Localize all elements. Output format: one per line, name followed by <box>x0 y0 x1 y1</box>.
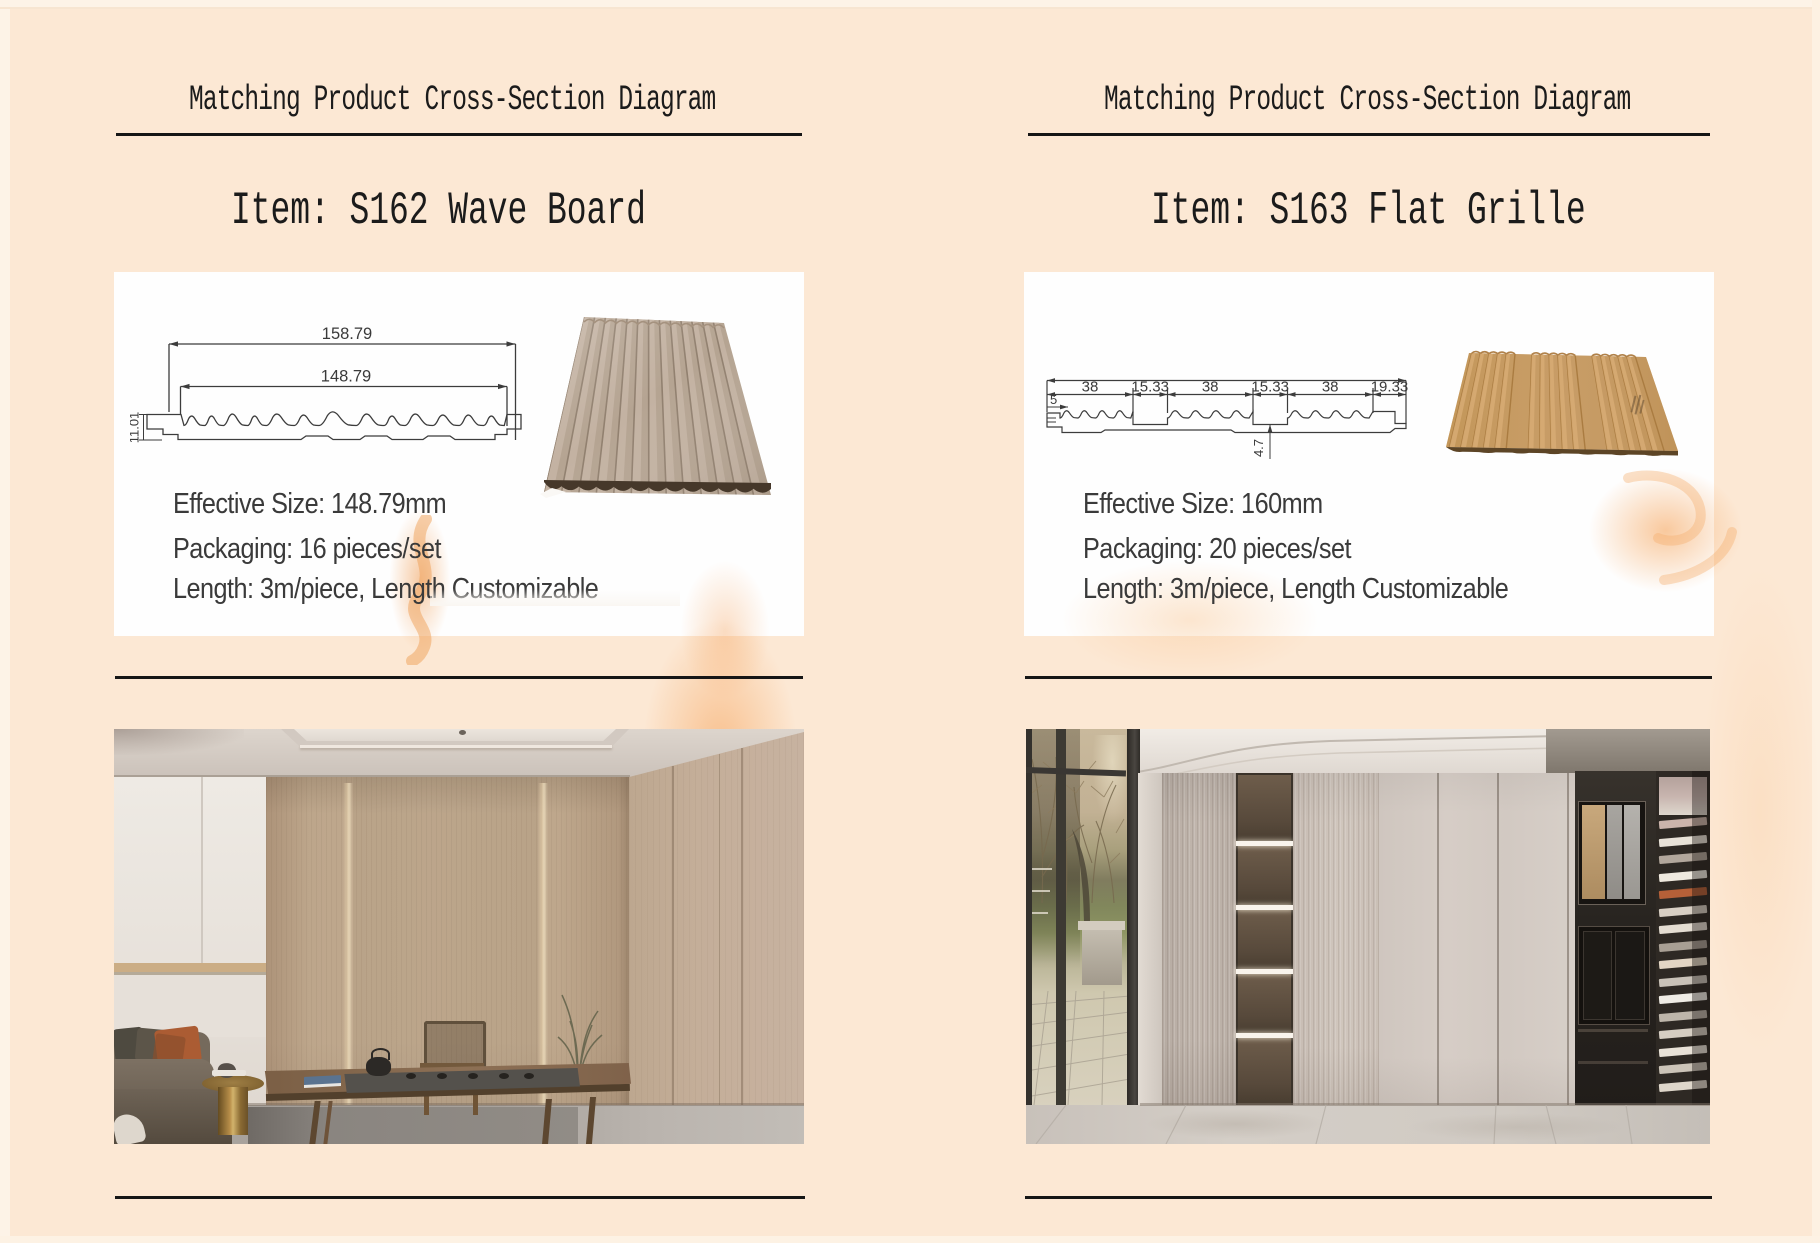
svg-text:38: 38 <box>1202 379 1219 396</box>
svg-text:158.79: 158.79 <box>322 325 372 343</box>
svg-text:38: 38 <box>1082 379 1099 396</box>
svg-text:15.33: 15.33 <box>1131 379 1169 396</box>
svg-text:11.01: 11.01 <box>130 412 142 444</box>
svg-text:38: 38 <box>1322 379 1339 396</box>
svg-text:19.33: 19.33 <box>1371 379 1409 396</box>
svg-text:15.33: 15.33 <box>1251 379 1289 396</box>
svg-text:148.79: 148.79 <box>321 368 371 386</box>
svg-text:5: 5 <box>1050 392 1057 407</box>
svg-text:4.7: 4.7 <box>1251 439 1266 457</box>
